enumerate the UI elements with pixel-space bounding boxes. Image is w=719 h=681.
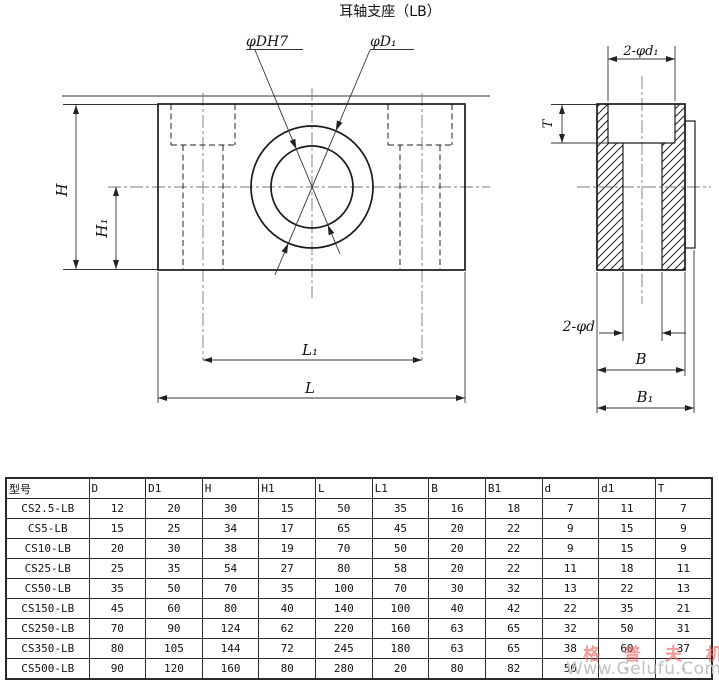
table-row: CS150-LB456080401401004042223521 bbox=[6, 599, 712, 619]
value-cell: 16 bbox=[429, 499, 486, 519]
value-cell: 15 bbox=[89, 519, 146, 539]
value-cell: 58 bbox=[372, 559, 429, 579]
value-cell: 30 bbox=[146, 539, 203, 559]
value-cell: 100 bbox=[316, 579, 373, 599]
value-cell: 65 bbox=[316, 519, 373, 539]
column-header: B1 bbox=[485, 478, 542, 499]
value-cell: 35 bbox=[259, 579, 316, 599]
value-cell: 15 bbox=[259, 499, 316, 519]
value-cell: 65 bbox=[485, 619, 542, 639]
value-cell: 62 bbox=[259, 619, 316, 639]
value-cell: 15 bbox=[599, 539, 656, 559]
value-cell: 50 bbox=[146, 579, 203, 599]
value-cell: 65 bbox=[485, 639, 542, 659]
value-cell: 31 bbox=[655, 619, 712, 639]
value-cell: 21 bbox=[655, 599, 712, 619]
counterbore-dim-label: 2-φd₁ bbox=[622, 44, 658, 59]
value-cell: 140 bbox=[316, 599, 373, 619]
value-cell: 11 bbox=[655, 559, 712, 579]
table-row: CS250-LB7090124622201606365325031 bbox=[6, 619, 712, 639]
value-cell: 220 bbox=[316, 619, 373, 639]
value-cell: 40 bbox=[429, 599, 486, 619]
value-cell: 9 bbox=[655, 539, 712, 559]
value-cell: 18 bbox=[485, 499, 542, 519]
column-header: D bbox=[89, 478, 146, 499]
value-cell: 22 bbox=[542, 599, 599, 619]
model-cell: CS150-LB bbox=[6, 599, 89, 619]
value-cell: 42 bbox=[485, 599, 542, 619]
column-header: d bbox=[542, 478, 599, 499]
column-header: L bbox=[316, 478, 373, 499]
value-cell: 80 bbox=[429, 659, 486, 680]
value-cell: 22 bbox=[599, 579, 656, 599]
value-cell: 15 bbox=[599, 519, 656, 539]
value-cell: 20 bbox=[429, 559, 486, 579]
value-cell: 50 bbox=[599, 619, 656, 639]
value-cell: 19 bbox=[259, 539, 316, 559]
model-cell: CS2.5-LB bbox=[6, 499, 89, 519]
depth-dim-label: T bbox=[541, 118, 556, 128]
value-cell: 17 bbox=[259, 519, 316, 539]
value-cell: 160 bbox=[372, 619, 429, 639]
value-cell: 9 bbox=[655, 519, 712, 539]
value-cell: 22 bbox=[485, 519, 542, 539]
value-cell: 160 bbox=[202, 659, 259, 680]
value-cell: 144 bbox=[202, 639, 259, 659]
model-cell: CS10-LB bbox=[6, 539, 89, 559]
value-cell: 90 bbox=[146, 619, 203, 639]
value-cell: 9 bbox=[542, 539, 599, 559]
column-header: B bbox=[429, 478, 486, 499]
length-dim-label: L bbox=[304, 379, 315, 397]
value-cell: 70 bbox=[89, 619, 146, 639]
table-row: CS2.5-LB12203015503516187117 bbox=[6, 499, 712, 519]
value-cell: 35 bbox=[89, 579, 146, 599]
model-cell: CS25-LB bbox=[6, 559, 89, 579]
value-cell: 72 bbox=[259, 639, 316, 659]
table-row: CS50-LB35507035100703032132213 bbox=[6, 579, 712, 599]
column-header: H1 bbox=[259, 478, 316, 499]
value-cell: 9 bbox=[542, 519, 599, 539]
value-cell: 60 bbox=[146, 599, 203, 619]
value-cell: 20 bbox=[89, 539, 146, 559]
bore-diameter-label: φDH7 bbox=[246, 34, 288, 50]
value-cell: 35 bbox=[372, 499, 429, 519]
value-cell: 70 bbox=[316, 539, 373, 559]
value-cell: 63 bbox=[429, 639, 486, 659]
table-row: CS25-LB2535542780582022111811 bbox=[6, 559, 712, 579]
value-cell: 105 bbox=[146, 639, 203, 659]
value-cell: 80 bbox=[89, 639, 146, 659]
drawing-title: 耳轴支座（LB） bbox=[339, 4, 440, 20]
value-cell: 50 bbox=[372, 539, 429, 559]
value-cell: 90 bbox=[89, 659, 146, 680]
value-cell: 13 bbox=[542, 579, 599, 599]
value-cell: 50 bbox=[316, 499, 373, 519]
width1-dim-label: B₁ bbox=[635, 388, 653, 406]
front-view: φDH7 φD₁ H H₁ L₁ L bbox=[53, 34, 490, 403]
value-cell: 35 bbox=[146, 559, 203, 579]
value-cell: 27 bbox=[259, 559, 316, 579]
column-header: L1 bbox=[372, 478, 429, 499]
value-cell: 11 bbox=[599, 499, 656, 519]
outer-diameter-label: φD₁ bbox=[370, 34, 397, 50]
length1-dim-label: L₁ bbox=[301, 341, 318, 359]
value-cell: 45 bbox=[372, 519, 429, 539]
value-cell: 124 bbox=[202, 619, 259, 639]
value-cell: 32 bbox=[485, 579, 542, 599]
value-cell: 18 bbox=[599, 559, 656, 579]
value-cell: 20 bbox=[372, 659, 429, 680]
value-cell: 30 bbox=[202, 499, 259, 519]
value-cell: 38 bbox=[202, 539, 259, 559]
model-cell: CS250-LB bbox=[6, 619, 89, 639]
value-cell: 245 bbox=[316, 639, 373, 659]
height-dim-label: H bbox=[53, 183, 71, 198]
value-cell: 82 bbox=[485, 659, 542, 680]
value-cell: 7 bbox=[542, 499, 599, 519]
height1-dim-label: H₁ bbox=[93, 218, 111, 238]
value-cell: 20 bbox=[146, 499, 203, 519]
value-cell: 20 bbox=[429, 519, 486, 539]
model-cell: CS500-LB bbox=[6, 659, 89, 680]
value-cell: 7 bbox=[655, 499, 712, 519]
value-cell: 80 bbox=[202, 599, 259, 619]
column-header: H bbox=[202, 478, 259, 499]
value-cell: 80 bbox=[259, 659, 316, 680]
model-cell: CS5-LB bbox=[6, 519, 89, 539]
watermark-url: Www.Gelufu.Com bbox=[566, 659, 719, 679]
value-cell: 11 bbox=[542, 559, 599, 579]
value-cell: 32 bbox=[542, 619, 599, 639]
value-cell: 100 bbox=[372, 599, 429, 619]
value-cell: 120 bbox=[146, 659, 203, 680]
table-header-row: 型号DD1HH1LL1BB1dd1T bbox=[6, 478, 712, 499]
value-cell: 25 bbox=[146, 519, 203, 539]
value-cell: 45 bbox=[89, 599, 146, 619]
value-cell: 35 bbox=[599, 599, 656, 619]
column-header: d1 bbox=[599, 478, 656, 499]
model-cell: CS50-LB bbox=[6, 579, 89, 599]
value-cell: 22 bbox=[485, 559, 542, 579]
value-cell: 13 bbox=[655, 579, 712, 599]
value-cell: 63 bbox=[429, 619, 486, 639]
value-cell: 22 bbox=[485, 539, 542, 559]
value-cell: 54 bbox=[202, 559, 259, 579]
column-header: T bbox=[655, 478, 712, 499]
catalog-page: 耳轴支座（LB） bbox=[0, 0, 719, 681]
width-dim-label: B bbox=[634, 350, 646, 368]
value-cell: 30 bbox=[429, 579, 486, 599]
hole-dim-label: 2-φd bbox=[562, 319, 595, 335]
value-cell: 34 bbox=[202, 519, 259, 539]
value-cell: 25 bbox=[89, 559, 146, 579]
value-cell: 70 bbox=[202, 579, 259, 599]
value-cell: 70 bbox=[372, 579, 429, 599]
value-cell: 40 bbox=[259, 599, 316, 619]
technical-drawing: 耳轴支座（LB） bbox=[0, 0, 719, 462]
value-cell: 180 bbox=[372, 639, 429, 659]
table-row: CS5-LB15253417654520229159 bbox=[6, 519, 712, 539]
column-header: D1 bbox=[146, 478, 203, 499]
model-cell: CS350-LB bbox=[6, 639, 89, 659]
value-cell: 80 bbox=[316, 559, 373, 579]
value-cell: 280 bbox=[316, 659, 373, 680]
column-header: 型号 bbox=[6, 478, 89, 499]
value-cell: 12 bbox=[89, 499, 146, 519]
side-view: 2-φd₁ T 2-φd B bbox=[541, 44, 711, 413]
table-row: CS10-LB20303819705020229159 bbox=[6, 539, 712, 559]
value-cell: 20 bbox=[429, 539, 486, 559]
